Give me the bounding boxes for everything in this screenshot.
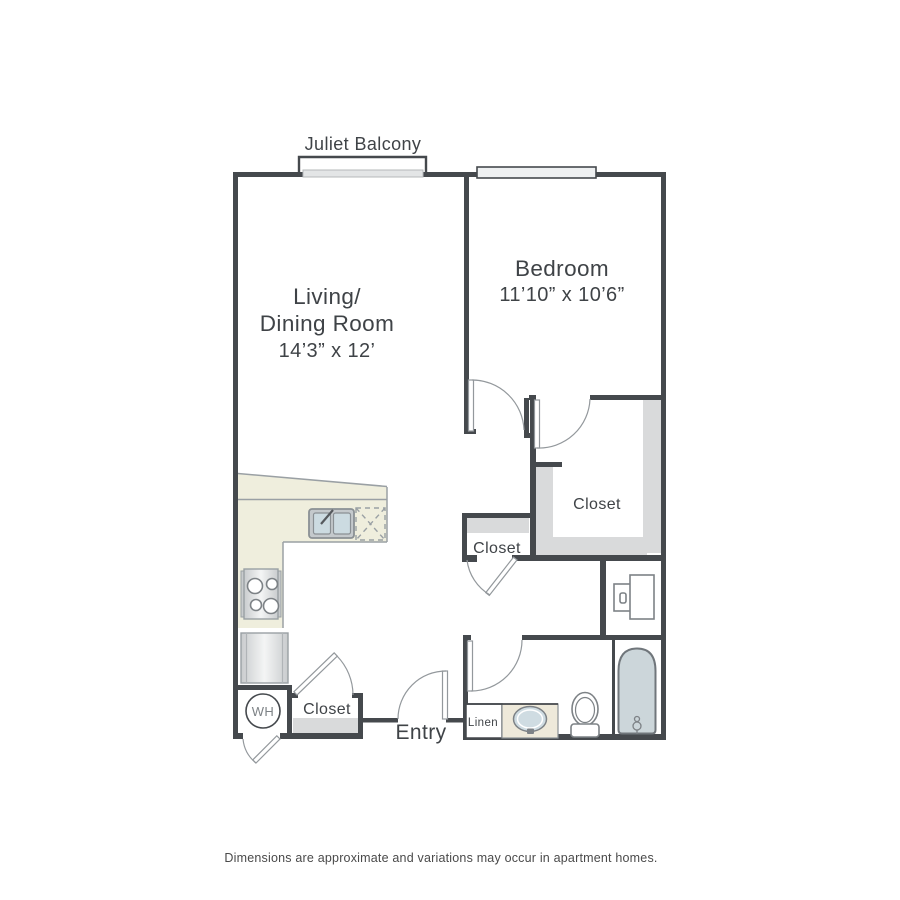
floorplan-drawing: Juliet Balcony Living/ Dining Room 14’3”… — [0, 0, 900, 900]
bedroom-window — [477, 167, 596, 178]
hall-closet-label: Closet — [473, 540, 521, 557]
hall-closet-door — [467, 557, 517, 595]
burner-icon — [251, 600, 262, 611]
living-room-label-line2: Dining Room — [260, 311, 394, 336]
kitchen-sink-icon — [309, 509, 354, 538]
floorplan-page: Juliet Balcony Living/ Dining Room 14’3”… — [0, 0, 900, 900]
living-room-dimensions: 14’3” x 12’ — [279, 340, 376, 362]
toilet-icon — [571, 693, 599, 738]
sink-faucet-icon — [527, 729, 534, 735]
hall-closet-shelf — [467, 518, 529, 533]
walk-in-closet-label: Closet — [573, 496, 621, 513]
juliet-balcony-label: Juliet Balcony — [305, 134, 422, 154]
entry-label: Entry — [395, 721, 446, 744]
burner-icon — [248, 579, 263, 594]
bedroom-dimensions: 11’10” x 10’6” — [499, 284, 624, 306]
bedroom-label: Bedroom — [515, 256, 609, 281]
water-heater-door — [243, 736, 280, 763]
bathroom-door — [468, 640, 523, 691]
refrigerator-icon — [241, 633, 288, 683]
washer-dryer-icon — [614, 575, 654, 619]
linen-label: Linen — [468, 717, 498, 729]
entry-closet-door — [294, 653, 353, 695]
stove-icon — [241, 569, 281, 619]
walk-in-closet-door — [535, 399, 591, 448]
walk-in-closet-shelves — [536, 400, 661, 557]
entry-door — [398, 671, 448, 719]
burner-icon — [264, 599, 279, 614]
tub-divider-wall — [612, 640, 615, 735]
bedroom-door — [469, 380, 525, 431]
balcony-window — [303, 170, 423, 177]
living-room-label-line1: Living/ — [293, 284, 361, 309]
water-heater-label: WH — [252, 704, 274, 719]
shelf-cap-wall — [536, 462, 562, 467]
burner-icon — [267, 579, 278, 590]
disclaimer-text: Dimensions are approximate and variation… — [224, 851, 657, 865]
entry-closet-label: Closet — [303, 701, 351, 718]
bathtub-icon — [619, 649, 656, 735]
